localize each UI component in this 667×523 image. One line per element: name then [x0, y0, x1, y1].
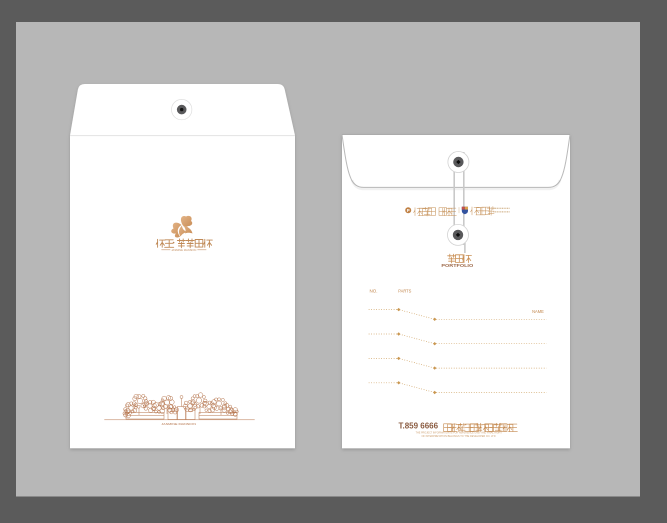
- svg-text::: :: [462, 423, 463, 428]
- svg-text:NO.: NO.: [370, 288, 378, 294]
- svg-text:JASMINE MANSION: JASMINE MANSION: [161, 422, 196, 426]
- svg-text:T.859 6666: T.859 6666: [399, 422, 439, 431]
- svg-text:OF INTERPRETATION BELONGS TO T: OF INTERPRETATION BELONGS TO THE DEVELOP…: [422, 435, 496, 438]
- svg-text:NAME: NAME: [532, 309, 544, 314]
- svg-text:PORTFOLIO: PORTFOLIO: [441, 263, 473, 268]
- svg-text:P: P: [407, 208, 410, 213]
- svg-text:JASMINE MANSION: JASMINE MANSION: [171, 248, 196, 252]
- svg-text:PARTS: PARTS: [398, 288, 411, 294]
